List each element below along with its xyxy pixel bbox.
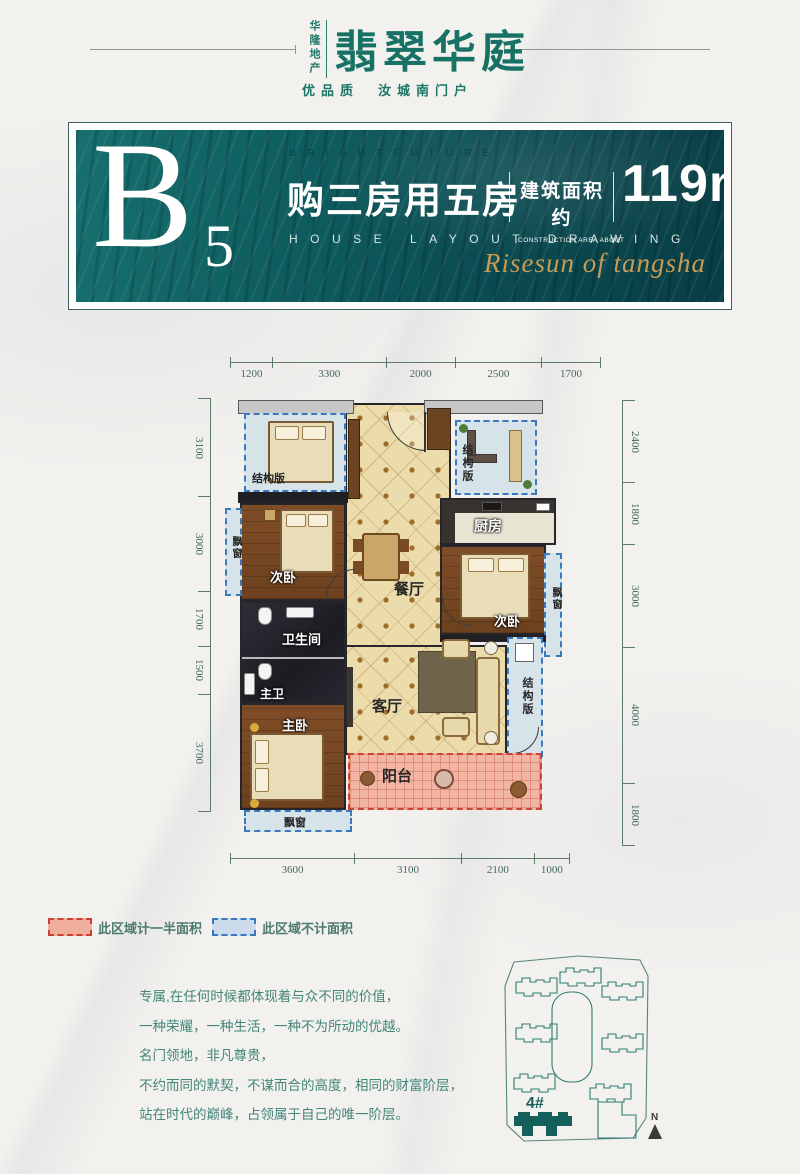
balcony-table (434, 769, 454, 789)
site-building-l-shape (598, 1102, 636, 1138)
site-plan: 4# (490, 950, 670, 1150)
armchair (442, 717, 470, 737)
dim-line-right: 2400 1800 3000 4000 1800 (622, 400, 635, 846)
copy-line: 名门领地，非凡尊贵， (139, 1041, 463, 1071)
room-kitchen: 厨房 (440, 498, 556, 545)
room-master-bedroom: 主卧 (240, 703, 346, 810)
unit-banner: B 5 BRIGHTFUTURE 购三房用五房 建筑面积约 CONSTRUCTI… (68, 122, 732, 310)
room-label-master-bath: 主卫 (260, 685, 284, 702)
nightstand (264, 509, 276, 521)
pillow (498, 558, 524, 572)
header-divider-left (90, 49, 296, 50)
shelf (509, 430, 522, 482)
dining-chair (353, 539, 362, 552)
bay-window-label: 飘窗 (228, 536, 243, 560)
side-table (484, 641, 498, 655)
legend-label-half-area: 此区域计一半面积 (98, 918, 202, 937)
site-buildings-outline (514, 968, 643, 1138)
side-table (484, 731, 498, 745)
banner-divider-1 (509, 172, 510, 222)
banner-headline: 购三房用五房 (287, 170, 521, 224)
poster-page: 华隆地产 翡翠华庭 优品质 汝城南门户 B 5 BRIGHTFUTURE 购三房… (0, 0, 800, 1174)
banner-divider-2 (613, 172, 614, 222)
room-label-bedroom2: 次卧 (270, 567, 296, 586)
armchair (442, 639, 470, 659)
banner-script-signature: Risesun of tangsha (366, 248, 706, 279)
room-label-balcony: 阳台 (382, 765, 412, 786)
dining-chair (400, 539, 409, 552)
room-label-kitchen: 厨房 (474, 516, 502, 536)
kitchen-counter-side (442, 500, 455, 543)
bay-window-right: 飘窗 (544, 553, 562, 657)
rug (418, 651, 476, 713)
north-arrow-icon (648, 1124, 662, 1139)
banner-artwork: B 5 BRIGHTFUTURE 购三房用五房 建筑面积约 CONSTRUCTI… (76, 130, 724, 302)
dim-segment: 1700 (541, 357, 601, 368)
room-balcony: 阳台 (348, 753, 542, 810)
dining-chair (400, 561, 409, 574)
room-structure-top-right: 结构版 (455, 420, 537, 495)
lamp (250, 723, 259, 732)
pillow (255, 768, 269, 792)
lamp (250, 799, 259, 808)
marketing-copy: 专属,在任何时候都体现着与众不同的价值， 一种荣耀，一种生活，一种不为所动的优越… (139, 982, 463, 1130)
toilet (258, 607, 272, 625)
room-label-bedroom2: 次卧 (494, 611, 520, 630)
floor-plan: 结构版 结构版 餐厅 厨房 (222, 395, 606, 855)
plant (360, 771, 375, 786)
legend-label-no-area: 此区域不计面积 (262, 918, 353, 937)
pillow (286, 514, 306, 527)
dim-segment: 3000 (622, 544, 635, 647)
dim-segment: 3000 (198, 496, 211, 591)
dim-line-left: 3100 3000 1700 1500 3700 (198, 398, 211, 812)
entrance-door-leaf (424, 412, 426, 452)
banner-kicker-en: BRIGHTFUTURE (289, 148, 500, 159)
copy-line: 专属,在任何时候都体现着与众不同的价值， (139, 982, 463, 1012)
room-label-structure: 结构版 (459, 444, 475, 483)
room-label-living: 客厅 (372, 695, 402, 716)
sink (286, 607, 314, 618)
area-label-cn: 建筑面积约 (518, 176, 606, 230)
dim-segment: 2400 (622, 400, 635, 482)
dim-segment: 4000 (622, 647, 635, 783)
room-label-dining: 餐厅 (394, 578, 424, 599)
brand-vertical-text: 华隆地产 (306, 20, 322, 82)
north-label: N (651, 1112, 658, 1123)
dim-segment: 1200 (230, 357, 272, 368)
bay-window-left: 飘窗 (225, 508, 242, 596)
unit-number: 5 (204, 216, 234, 276)
tv-cabinet (347, 667, 353, 727)
plant (523, 480, 532, 489)
logo-text: 翡翠华庭 (334, 16, 530, 80)
shoe-cabinet (427, 408, 451, 450)
bay-window-bottom: 飘窗 (244, 810, 352, 832)
copy-line: 不约而同的默契，不谋而合的高度，相同的财富阶层， (139, 1071, 463, 1101)
legend-swatch-half-area (48, 918, 92, 936)
dim-segment: 3700 (198, 694, 211, 812)
brand-separator (326, 20, 327, 78)
pillow (468, 558, 494, 572)
room-label-bathroom: 卫生间 (282, 629, 321, 648)
kitchen-sink (536, 503, 550, 511)
bay-window-label: 飘窗 (548, 587, 563, 611)
dim-segment: 2500 (455, 357, 541, 368)
hall-cabinet (348, 419, 360, 499)
sink (244, 673, 255, 695)
bed (280, 509, 334, 573)
area-value-number: 119m (622, 155, 724, 213)
room-label-master-bedroom: 主卧 (282, 715, 308, 734)
copy-line: 站在时代的巅峰，占领属于自己的唯一阶层。 (139, 1100, 463, 1130)
header-tagline: 优品质 汝城南门户 (302, 80, 473, 99)
dim-segment: 1500 (198, 646, 211, 694)
dim-line-top: 1200 3300 2000 2500 1700 (230, 357, 601, 368)
room-bathrooms: 卫生间 主卫 (240, 601, 346, 703)
stove (482, 502, 502, 511)
dim-segment: 3300 (272, 357, 386, 368)
pillow (255, 740, 269, 764)
copy-line: 一种荣耀，一种生活，一种不为所动的优越。 (139, 1012, 463, 1042)
dim-segment: 3100 (198, 398, 211, 496)
header-divider-right (504, 49, 710, 50)
room-label-structure: 结构版 (252, 470, 285, 486)
dim-segment: 2000 (386, 357, 455, 368)
bathroom-divider-wall (242, 657, 344, 659)
dim-segment: 1800 (622, 482, 635, 544)
dim-segment: 1800 (622, 783, 635, 846)
dim-segment: 1700 (198, 591, 211, 645)
room-structure-top-left: 结构版 (244, 413, 346, 492)
bay-window-label: 飘窗 (284, 814, 306, 830)
site-building-4-solid (514, 1112, 572, 1136)
toilet (258, 663, 272, 680)
pillow (308, 514, 328, 527)
area-value: 119m2 (622, 154, 724, 214)
pillow (302, 426, 326, 440)
site-pond (552, 992, 592, 1082)
legend-swatch-no-area (212, 918, 256, 936)
wall-cap-left (238, 400, 354, 414)
plant (510, 781, 527, 798)
dining-table (362, 533, 400, 581)
unit-letter: B (92, 130, 193, 276)
site-building-label: 4# (526, 1095, 544, 1112)
room-label-structure: 结构版 (519, 677, 535, 716)
wall-segment (238, 492, 348, 503)
pillow (275, 426, 299, 440)
plant (459, 424, 468, 433)
bed (250, 733, 324, 801)
banner-subtitle-en: HOUSE LAYOUT DRAWING (289, 232, 693, 246)
washing-machine (515, 643, 534, 662)
